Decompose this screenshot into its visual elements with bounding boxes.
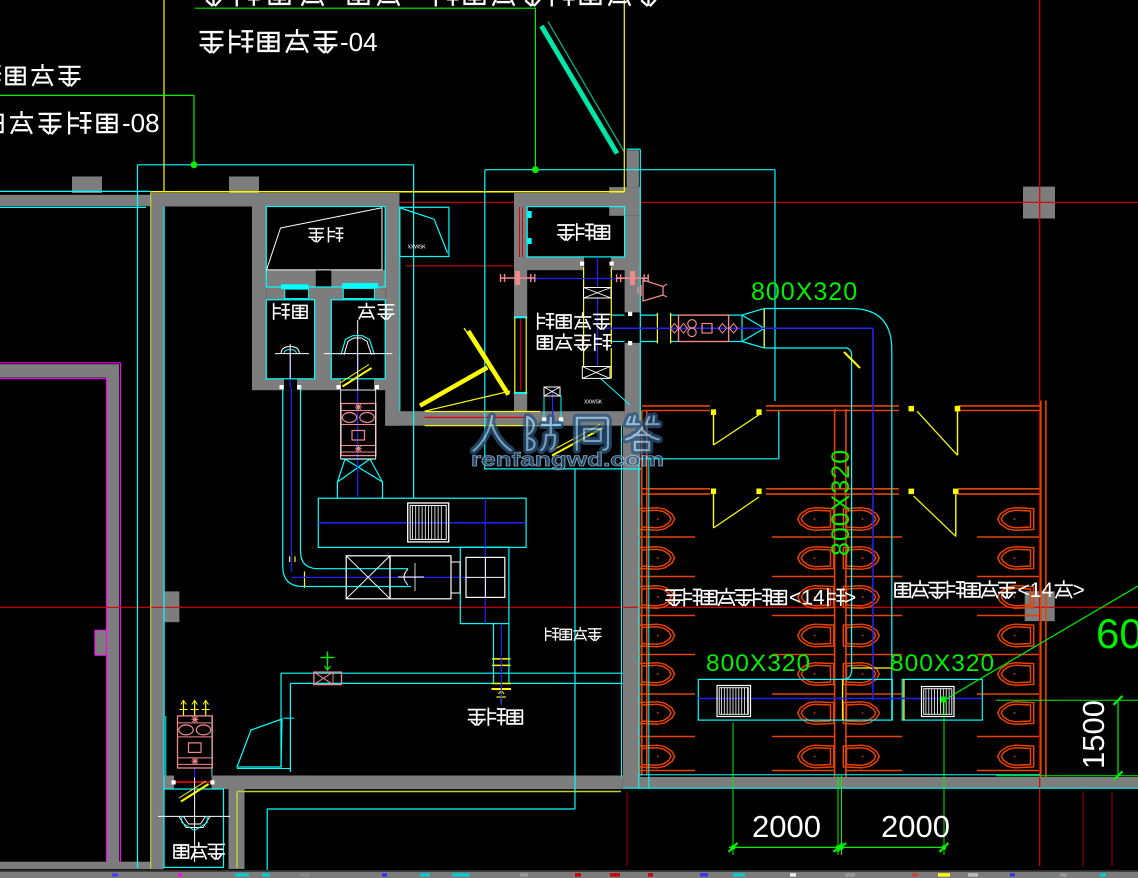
svg-text:800X320: 800X320 bbox=[890, 650, 995, 677]
svg-text:800X320: 800X320 bbox=[751, 278, 858, 306]
svg-text:2000: 2000 bbox=[752, 809, 821, 844]
svg-text:XXWSK: XXWSK bbox=[408, 245, 427, 251]
svg-text:-04: -04 bbox=[340, 27, 378, 57]
svg-text:XXWSK: XXWSK bbox=[584, 400, 603, 406]
svg-text:>: > bbox=[1073, 579, 1085, 602]
svg-text:800X320: 800X320 bbox=[827, 449, 855, 556]
svg-text:800X320: 800X320 bbox=[706, 650, 811, 677]
svg-text:<14: <14 bbox=[1018, 579, 1054, 602]
svg-text:<14: <14 bbox=[789, 587, 825, 610]
svg-text:renfangwd.com: renfangwd.com bbox=[471, 449, 664, 471]
svg-text:>: > bbox=[844, 587, 856, 610]
svg-text:2000: 2000 bbox=[881, 809, 950, 844]
svg-text:60: 60 bbox=[1096, 610, 1138, 657]
svg-text:-08: -08 bbox=[122, 108, 160, 138]
svg-text:1500: 1500 bbox=[1076, 700, 1111, 769]
